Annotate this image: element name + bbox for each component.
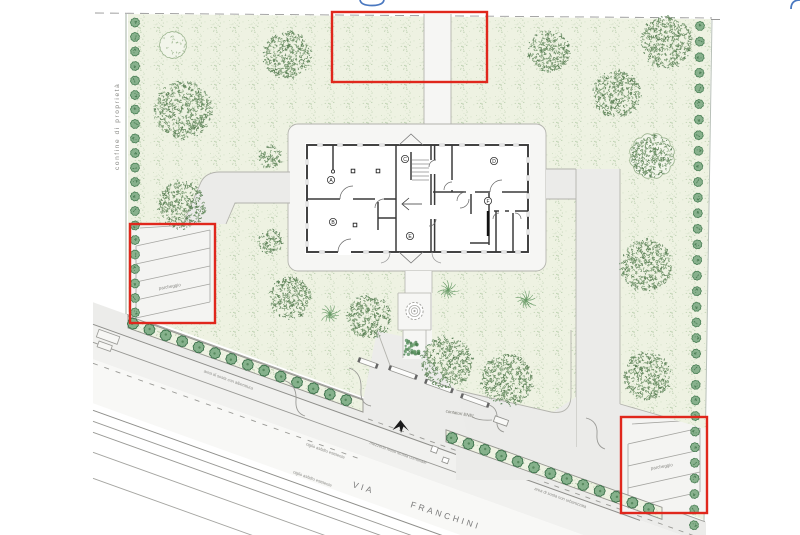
svg-text:D: D bbox=[492, 159, 496, 165]
svg-text:F: F bbox=[486, 199, 489, 205]
svg-text:C: C bbox=[403, 157, 407, 163]
svg-text:confine di proprietà: confine di proprietà bbox=[114, 83, 121, 170]
